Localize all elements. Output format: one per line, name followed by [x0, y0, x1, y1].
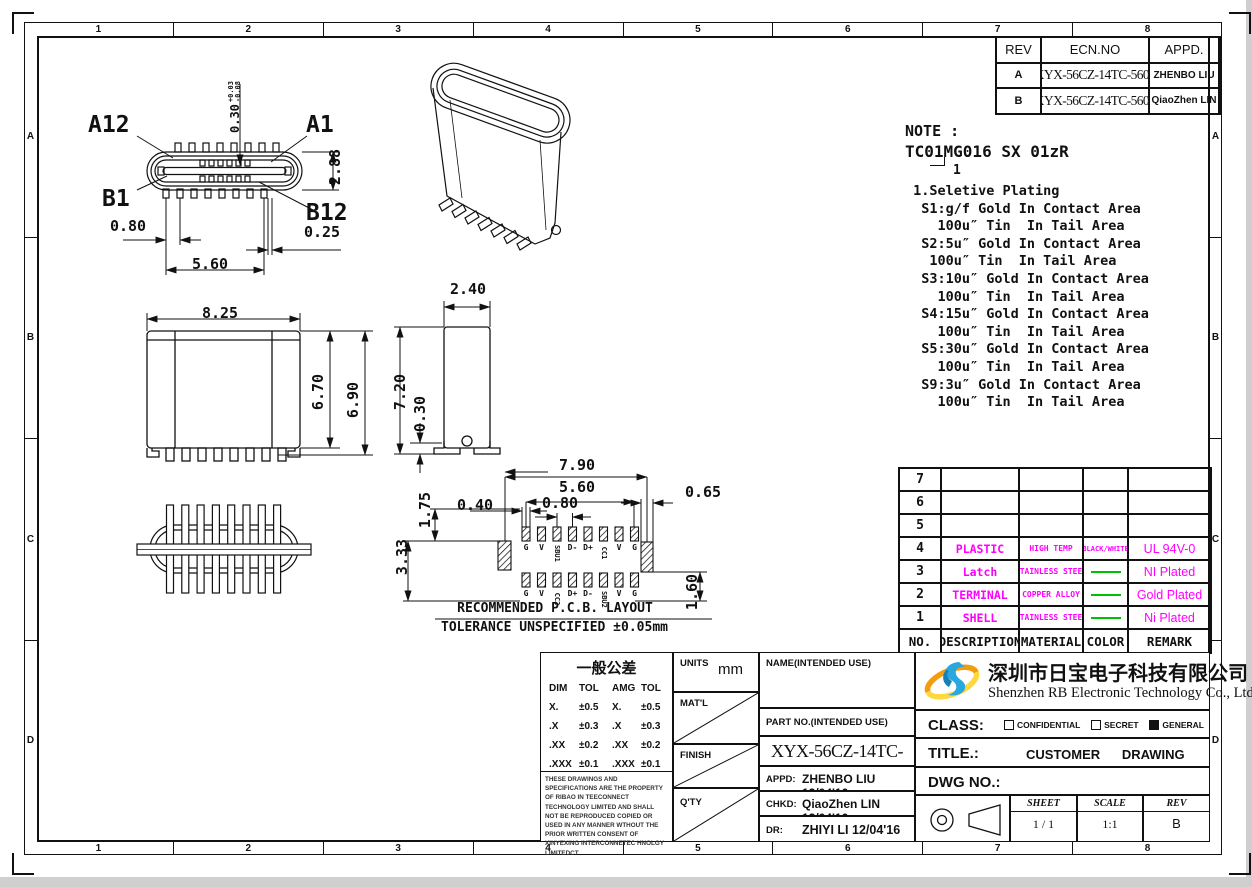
projection-symbol-cell — [915, 795, 1010, 842]
zone-row-label: B — [1209, 238, 1222, 440]
class-option: GENERAL — [1149, 720, 1204, 730]
dim-pitch-080: 0.80 — [535, 494, 585, 512]
company-logo — [921, 656, 983, 708]
sheet-label: SHEET — [1011, 798, 1076, 809]
rev-cell: REV B — [1143, 795, 1210, 842]
bom-color: BLACK/WHITE — [1083, 537, 1128, 560]
bom-material: COPPER ALLOY — [1019, 583, 1083, 606]
bom-description — [941, 514, 1019, 537]
class-cell: CLASS: CONFIDENTIALSECRETGENERAL — [915, 710, 1210, 738]
units-value: mm — [718, 661, 743, 678]
bom-remark: Gold Plated — [1128, 583, 1211, 606]
zone-col-label: 3 — [324, 841, 474, 855]
bom-color — [1083, 560, 1128, 583]
pcb-pin-label: D+ — [580, 543, 596, 552]
screen-edge-bottom — [0, 877, 1252, 887]
engineering-drawing-sheet: 12345678 12345678 ABCD ABCD — [0, 0, 1252, 887]
pcb-pin-label: V — [611, 589, 627, 598]
sheet-cell: SHEET 1 / 1 — [1010, 795, 1077, 842]
note-line: S5:30u″ Gold In Contact Area — [905, 341, 1149, 359]
dim-outer-span-790: 7.90 — [552, 456, 602, 474]
color-line — [1091, 594, 1121, 596]
bom-description: Latch — [941, 560, 1019, 583]
bom-description — [941, 468, 1019, 491]
dr-cell: DR: ZHIYI LI 12/04'16 — [759, 816, 915, 842]
note-line: 100u″ Tin In Tail Area — [905, 359, 1149, 377]
pcb-caption-title: RECOMMENDED P.C.B. LAYOUT — [455, 601, 655, 616]
company-name-en: Shenzhen RB Electronic Technology Co., L… — [988, 685, 1205, 702]
scale-cell: SCALE 1:1 — [1077, 795, 1143, 842]
pcb-pin-label: D- — [580, 589, 596, 598]
part-label: PART NO.(INTENDED USE) — [766, 717, 888, 728]
class-option: CONFIDENTIAL — [1004, 720, 1080, 730]
note-line: S2:5u″ Gold In Contact Area — [905, 236, 1149, 254]
zone-row-label: C — [24, 439, 37, 641]
tolerance-value: .X — [612, 717, 641, 736]
bom-header: DESCRIPTION — [941, 629, 1019, 653]
pcb-pin-label: D- — [565, 543, 581, 552]
dim-value: 0.30 — [228, 104, 242, 133]
class-option-label: CONFIDENTIAL — [1017, 720, 1080, 730]
dim-gap-025: 0.25 — [297, 223, 347, 241]
bom-remark: UL 94V-0 — [1128, 537, 1211, 560]
revision-rev: A — [996, 63, 1041, 89]
zone-col-label: 4 — [474, 22, 624, 36]
bom-material: HIGH TEMP — [1019, 537, 1083, 560]
bom-color — [1083, 583, 1128, 606]
class-label: CLASS: — [928, 717, 984, 734]
dwg-no-cell: DWG NO.: — [915, 767, 1210, 795]
tolerance-value: ±0.5 — [641, 698, 674, 717]
note-line: 100u″ Tin In Tail Area — [905, 253, 1149, 271]
bom-color — [1083, 514, 1128, 537]
note-line: S9:3u″ Gold In Contact Area — [905, 377, 1149, 395]
units-cell: UNITS mm — [673, 652, 759, 692]
dwg-no-label: DWG NO.: — [928, 774, 1001, 791]
company-cell: 深圳市日宝电子科技有限公司 Shenzhen RB Electronic Tec… — [915, 652, 1210, 710]
zone-letters-left: ABCD — [24, 36, 37, 841]
unchecked-box-icon — [1004, 720, 1014, 730]
dr-value: ZHIYI LI 12/04'16 — [802, 823, 900, 837]
bom-header: REMARK — [1128, 629, 1211, 653]
class-option-label: GENERAL — [1162, 720, 1204, 730]
zone-col-label: 1 — [24, 841, 174, 855]
note-plating-lines: 1.Seletive Plating S1:g/f Gold In Contac… — [905, 183, 1149, 412]
note-title: NOTE : — [905, 122, 1149, 140]
bom-color — [1083, 606, 1128, 629]
zone-col-label: 8 — [1073, 22, 1222, 36]
part-value-cell: XYX-56CZ-14TC-5601 — [759, 736, 915, 766]
dim-row-offset-175: 1.75 — [416, 485, 434, 535]
note-line: S4:15u″ Gold In Contact Area — [905, 306, 1149, 324]
pin-label-b1: B1 — [102, 186, 130, 212]
note-line: 1.Seletive Plating — [905, 183, 1149, 201]
rev-label: REV — [1144, 798, 1209, 809]
note-line: S1:g/f Gold In Contact Area — [905, 201, 1149, 219]
class-option-label: SECRET — [1104, 720, 1138, 730]
trim-mark — [1229, 12, 1251, 34]
pcb-pin-label: G — [518, 589, 534, 598]
dim-tongue-thickness: 0.30 +0.03 -0.08 — [228, 70, 242, 144]
dr-label: DR: — [766, 825, 783, 836]
tolerance-value: .X — [549, 717, 579, 736]
pin-label-a1: A1 — [306, 112, 334, 138]
trim-mark — [12, 853, 34, 875]
dim-width-825: 8.25 — [195, 304, 245, 322]
revision-ecn: XYX-56CZ-14TC-5601 — [1041, 63, 1149, 89]
tolerance-value: ±0.3 — [579, 717, 612, 736]
legal-text: THESE DRAWINGS AND SPECIFICATIONS ARE TH… — [545, 775, 669, 858]
bom-color — [1083, 468, 1128, 491]
pcb-pin-label: SBU1 — [553, 545, 561, 561]
tol-minus: -0.08 — [235, 81, 242, 102]
scale-label: SCALE — [1078, 798, 1142, 809]
tolerance-value: .XX — [612, 736, 641, 755]
bom-table: 7654PLASTICHIGH TEMPBLACK/WHITEUL 94V-03… — [898, 467, 1212, 654]
tolerance-box: 一般公差 DIMTOLAMGTOLX.±0.5X.±0.5.X±0.3.X±0.… — [540, 652, 673, 842]
note-line: 100u″ Tin In Tail Area — [905, 394, 1149, 412]
top-view-drawing — [135, 495, 320, 630]
bom-material: STAINLESS STEEL — [1019, 606, 1083, 629]
pcb-pin-label: V — [534, 589, 550, 598]
checked-box-icon — [1149, 720, 1159, 730]
bom-material — [1019, 491, 1083, 514]
bom-no: 4 — [899, 537, 941, 560]
pcb-pin-label: G — [518, 543, 534, 552]
dim-height-288: 2.88 — [326, 142, 344, 192]
finish-cell: FINISH — [673, 744, 759, 788]
bom-remark — [1128, 514, 1211, 537]
zone-col-label: 6 — [773, 841, 923, 855]
dim-standoff-030: 0.30 — [411, 389, 429, 439]
revision-table: REVECN.NOAPPD.AXYX-56CZ-14TC-5601ZHENBO … — [995, 36, 1221, 115]
bom-color — [1083, 491, 1128, 514]
title-cell: TITLE.: CUSTOMER DRAWING — [915, 738, 1210, 767]
zone-letters-right: ABCD — [1209, 36, 1222, 841]
bom-no: 3 — [899, 560, 941, 583]
zone-col-label: 5 — [624, 22, 774, 36]
note-line: 100u″ Tin In Tail Area — [905, 324, 1149, 342]
tolerance-header: AMG — [612, 679, 641, 698]
bom-no: 5 — [899, 514, 941, 537]
zone-col-label: 1 — [24, 22, 174, 36]
bom-remark — [1128, 491, 1211, 514]
bom-description: PLASTIC — [941, 537, 1019, 560]
pcb-pin-label: V — [611, 543, 627, 552]
pcb-pin-label: G — [627, 543, 643, 552]
zone-col-label: 2 — [174, 841, 324, 855]
unchecked-box-icon — [1091, 720, 1101, 730]
bom-header: NO. — [899, 629, 941, 653]
appd-cell: APPD: ZHENBO LIU 12/04'16 — [759, 766, 915, 791]
zone-row-label: A — [24, 36, 37, 238]
bom-remark: Ni Plated — [1128, 606, 1211, 629]
title-value: CUSTOMER DRAWING — [1026, 747, 1185, 762]
revision-header: ECN.NO — [1041, 37, 1149, 63]
class-options: CONFIDENTIALSECRETGENERAL — [1004, 720, 1204, 730]
class-option: SECRET — [1091, 720, 1138, 730]
tolerance-value: ±0.3 — [641, 717, 674, 736]
bom-no: 2 — [899, 583, 941, 606]
tolerance-value: ±0.2 — [641, 736, 674, 755]
color-line — [1091, 617, 1121, 619]
pcb-pin-label: D+ — [565, 589, 581, 598]
dim-span-560: 5.60 — [185, 255, 235, 273]
dim-height-720: 7.20 — [391, 367, 409, 417]
elevation-view-drawing — [128, 295, 378, 510]
tolerance-value: ±0.2 — [579, 736, 612, 755]
title-label: TITLE.: — [928, 745, 979, 762]
scale-value: 1:1 — [1078, 817, 1142, 832]
part-label-cell: PART NO.(INTENDED USE) — [759, 708, 915, 736]
sheet-value: 1 / 1 — [1011, 817, 1076, 832]
revision-rev: B — [996, 88, 1041, 114]
chkd-label: CHKD: — [766, 799, 797, 810]
bom-header: COLOR — [1083, 629, 1128, 653]
zone-col-label: 8 — [1073, 841, 1222, 855]
bom-remark: NI Plated — [1128, 560, 1211, 583]
dim-width-240: 2.40 — [443, 280, 493, 298]
dim-tolerance-stack: +0.03 -0.08 — [228, 81, 242, 102]
zone-col-label: 7 — [923, 841, 1073, 855]
zone-col-label: 3 — [324, 22, 474, 36]
bom-material — [1019, 514, 1083, 537]
note-line: 100u″ Tin In Tail Area — [905, 289, 1149, 307]
pcb-pin-label: V — [534, 543, 550, 552]
pin-label-a12: A12 — [88, 112, 130, 138]
revision-ecn: XYX-56CZ-14TC-5601 — [1041, 88, 1149, 114]
bom-material — [1019, 468, 1083, 491]
dim-pad-width-040: 0.40 — [450, 496, 500, 514]
tolerance-value: X. — [549, 698, 579, 717]
tolerance-title: 一般公差 — [541, 657, 672, 678]
pcb-pin-label: G — [627, 589, 643, 598]
company-name-cn: 深圳市日宝电子科技有限公司 — [988, 657, 1205, 686]
isometric-view-drawing — [420, 48, 620, 283]
zone-col-label: 2 — [174, 22, 324, 36]
projection-symbol — [924, 802, 1004, 838]
note-line: 100u″ Tin In Tail Area — [905, 218, 1149, 236]
name-label: NAME(INTENDED USE) — [766, 658, 871, 669]
tolerance-header: TOL — [579, 679, 612, 698]
dim-tab-width-065: 0.65 — [678, 483, 728, 501]
screen-edge-right — [1246, 0, 1252, 887]
note-block: NOTE : TC01MG016 SX 01zR 1 1.Seletive Pl… — [905, 122, 1149, 412]
rev-value: B — [1144, 816, 1209, 831]
tolerance-header: DIM — [549, 679, 579, 698]
name-cell: NAME(INTENDED USE) — [759, 652, 915, 708]
dim-height-690: 6.90 — [344, 375, 362, 425]
note-line: S3:10u″ Gold In Contact Area — [905, 271, 1149, 289]
bom-no: 6 — [899, 491, 941, 514]
revision-header: REV — [996, 37, 1041, 63]
bom-description — [941, 491, 1019, 514]
tolerance-value: .XX — [549, 736, 579, 755]
bom-header: MATERIAL — [1019, 629, 1083, 653]
color-line — [1091, 571, 1121, 573]
units-label: UNITS — [680, 658, 709, 669]
matl-cell: MAT'L — [673, 692, 759, 744]
zone-row-label: D — [24, 641, 37, 842]
pcb-pin-label: CC1 — [600, 545, 608, 561]
appd-label: APPD: — [766, 774, 796, 785]
dim-height-670: 6.70 — [309, 367, 327, 417]
dim-row-span-333: 3.33 — [393, 532, 411, 582]
bom-description: SHELL — [941, 606, 1019, 629]
bom-no: 1 — [899, 606, 941, 629]
revision-appd: QiaoZhen LIN — [1149, 88, 1219, 114]
qty-cell: Q'TY — [673, 788, 759, 842]
tolerance-value: X. — [612, 698, 641, 717]
zone-numbers-top: 12345678 — [24, 22, 1222, 36]
chkd-cell: CHKD: QiaoZhen LIN 12/04'16 — [759, 791, 915, 816]
tolerance-table: DIMTOLAMGTOLX.±0.5X.±0.5.X±0.3.X±0.3.XX±… — [549, 679, 674, 774]
zone-col-label: 6 — [773, 22, 923, 36]
tolerance-value: ±0.5 — [579, 698, 612, 717]
bom-description: TERMINAL — [941, 583, 1019, 606]
bom-remark — [1128, 468, 1211, 491]
side-view-drawing — [390, 275, 555, 485]
revision-appd: ZHENBO LIU — [1149, 63, 1219, 89]
callout-number: 1 — [953, 163, 961, 178]
dim-tab-height-160: 1.60 — [683, 567, 701, 617]
pcb-caption-tolerance: TOLERANCE UNSPECIFIED ±0.05mm — [432, 620, 677, 635]
trim-mark — [1229, 853, 1251, 875]
callout-mark — [930, 157, 945, 166]
zone-col-label: 7 — [923, 22, 1073, 36]
bom-no: 7 — [899, 468, 941, 491]
tolerance-header: TOL — [641, 679, 674, 698]
bom-material: STAINLESS STEEL — [1019, 560, 1083, 583]
revision-header: APPD. — [1149, 37, 1219, 63]
dim-pitch-080: 0.80 — [103, 217, 153, 235]
zone-row-label: B — [24, 238, 37, 440]
